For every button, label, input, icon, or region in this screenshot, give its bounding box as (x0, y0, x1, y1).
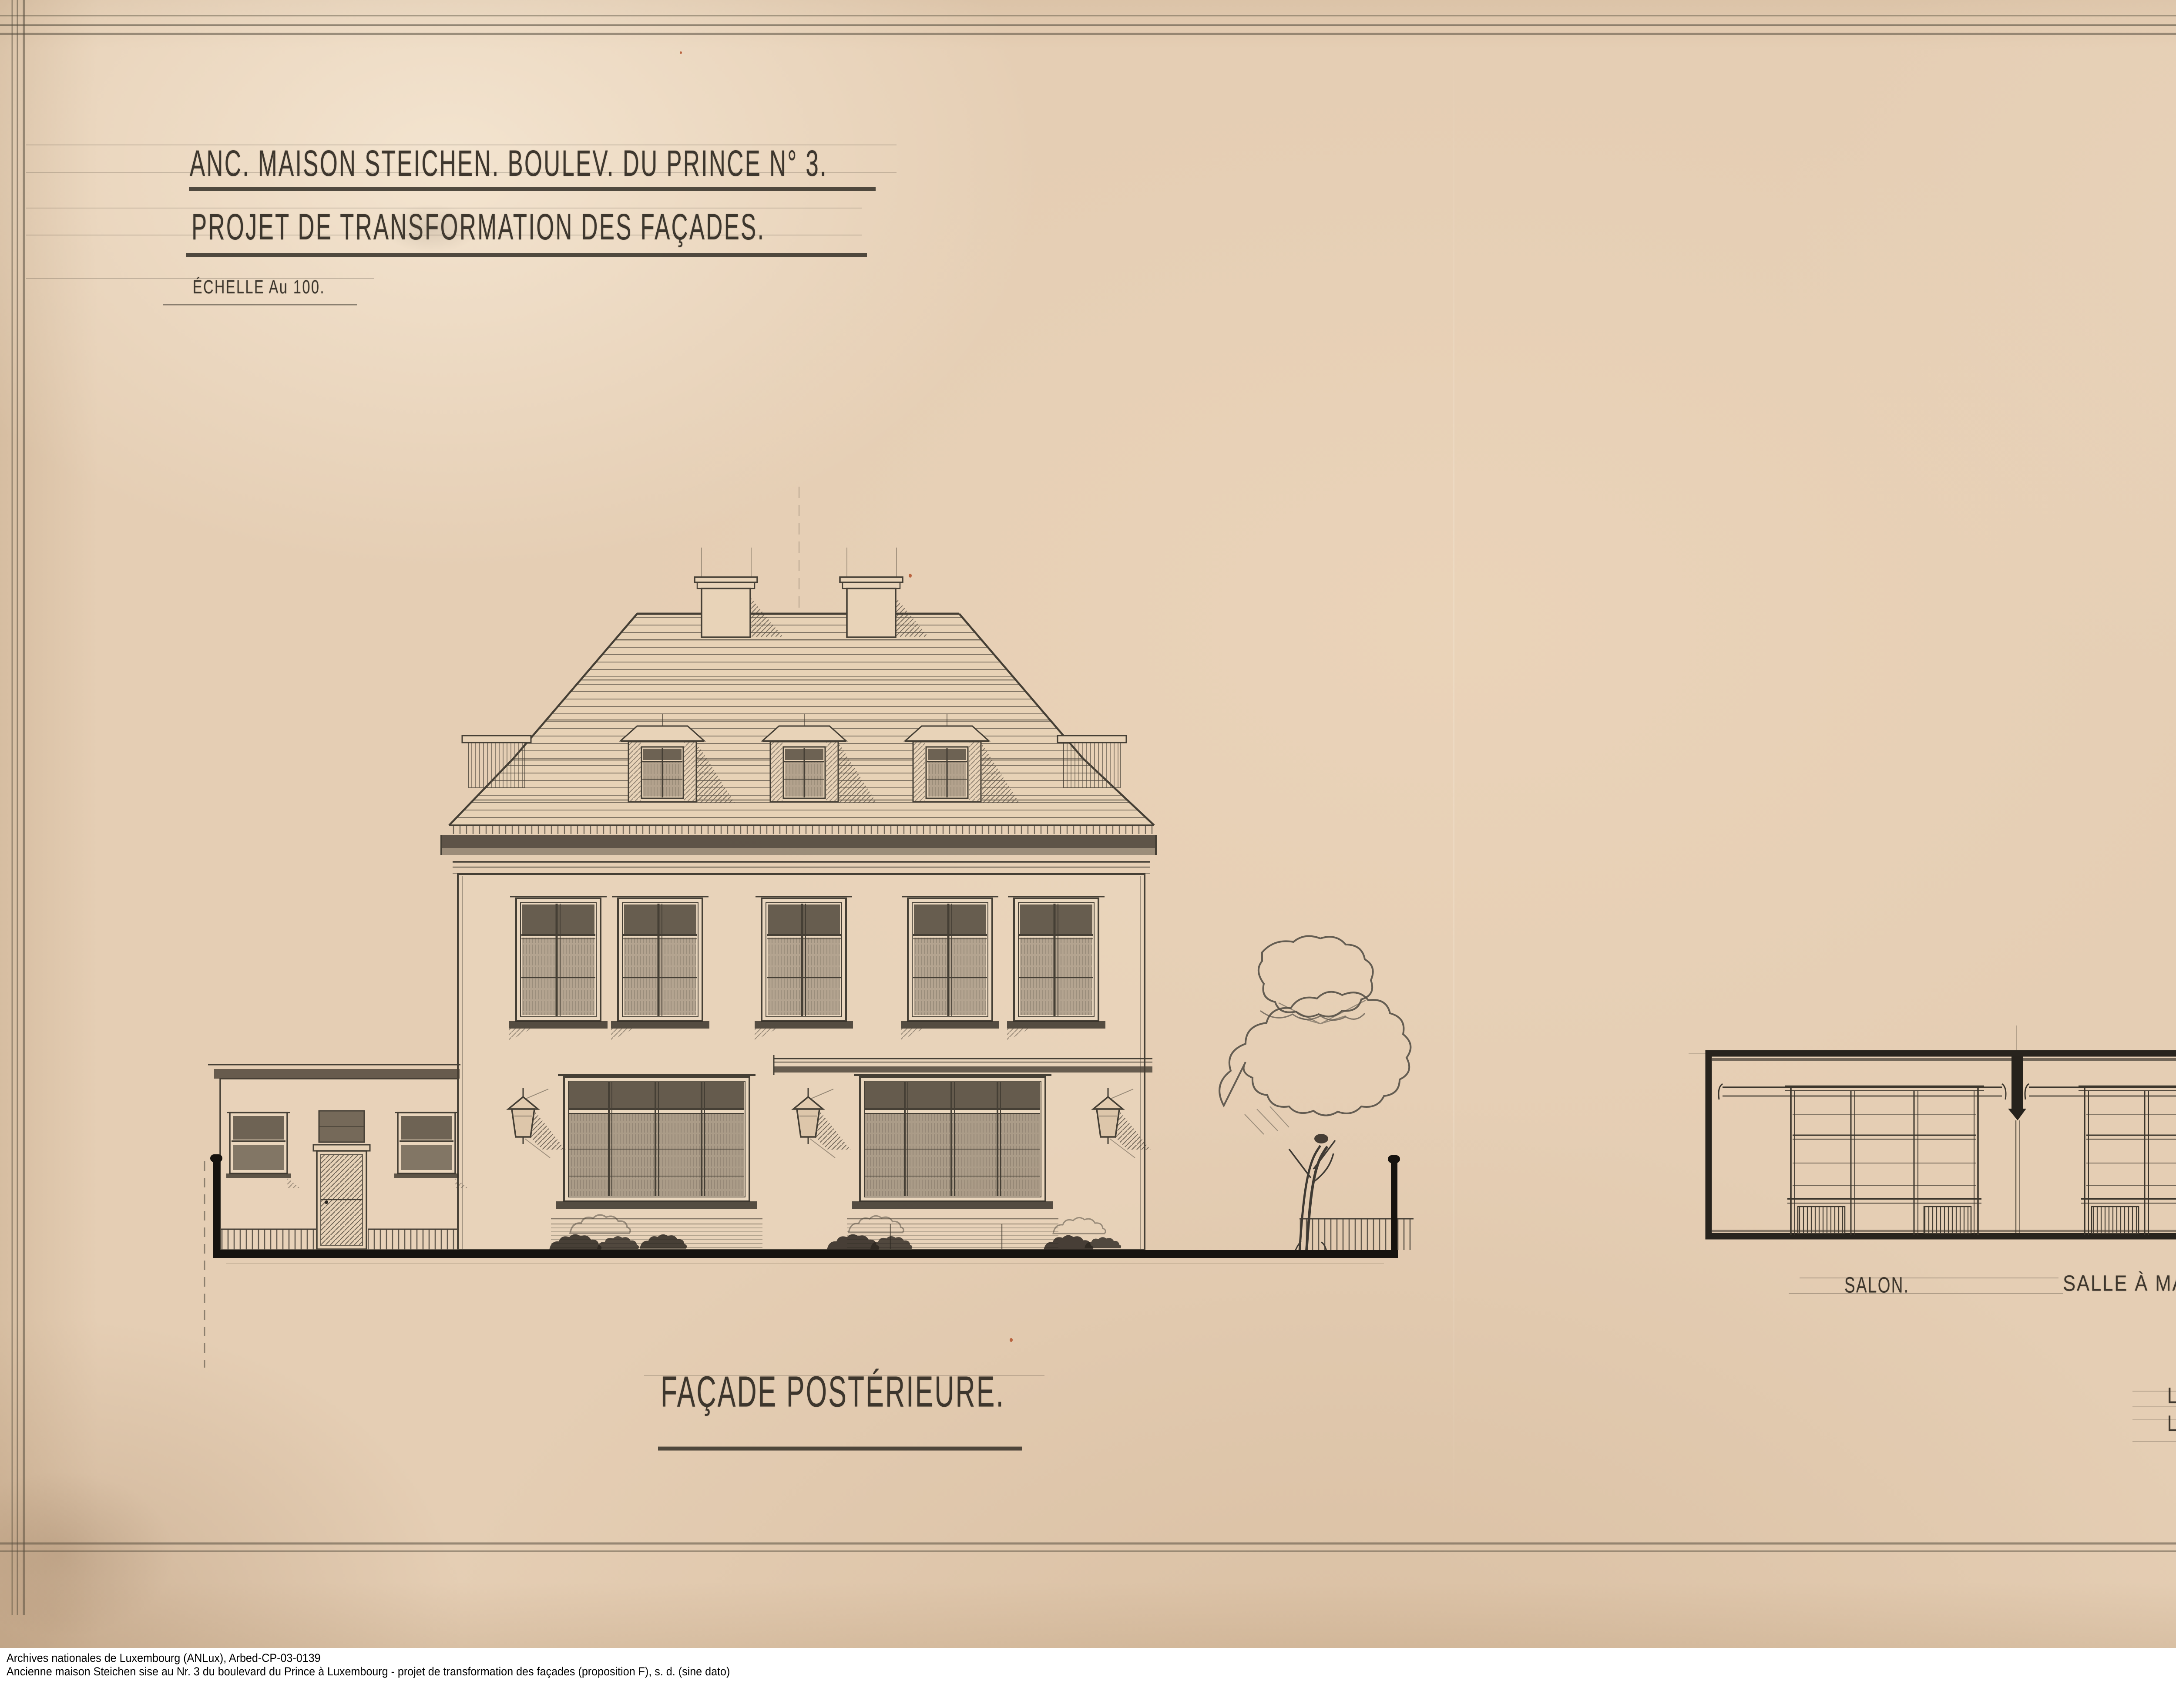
dining-window-wall (2079, 1086, 2176, 1235)
drawing-caption: FAÇADE POSTÉRIEURE. (661, 1367, 1005, 1417)
title-line-1: ANC. MAISON STEICHEN. BOULEV. DU PRINCE … (190, 142, 828, 184)
scanned-archive-page: ANC. MAISON STEICHEN. BOULEV. DU PRINCE … (0, 0, 2176, 1708)
roof-side-block-left (462, 736, 531, 788)
house-elevation (205, 487, 1414, 1368)
annex-door (313, 1111, 370, 1249)
eaves-cornice (441, 825, 1156, 873)
upper-window-4 (901, 897, 999, 1041)
rust-speck (909, 574, 912, 578)
chimney-right (840, 548, 929, 637)
upper-window-2 (611, 897, 709, 1041)
archive-description: Ancienne maison Steichen sise au Nr. 3 d… (7, 1665, 730, 1678)
upper-window-3 (755, 897, 853, 1041)
chimney-left (695, 548, 783, 637)
paper-stain (383, 205, 479, 252)
scale-note: ÉCHELLE Au 100. (193, 277, 325, 298)
garden-tree (1219, 936, 1410, 1251)
annex-wing (208, 1065, 468, 1250)
roof-side-block-right (1058, 736, 1126, 788)
rust-speck (680, 51, 682, 54)
interior-section (1689, 1025, 2176, 1236)
signature-architect: L'ARCHITECTE EN CHEF D'ARBED„ (2167, 1410, 2176, 1436)
room-label-salon: SALON. (1844, 1272, 1909, 1298)
paper-crease (1453, 26, 1454, 1550)
ground-window-left (556, 1075, 757, 1209)
upper-window-1 (509, 897, 608, 1041)
drawing-sheet: ANC. MAISON STEICHEN. BOULEV. DU PRINCE … (0, 0, 2176, 1648)
signature-city-date: LUXEMBOURG. LE (2167, 1382, 2176, 1408)
rust-speck (1010, 1338, 1013, 1342)
salon-window-wall (1785, 1086, 1984, 1235)
ground-window-right (852, 1075, 1053, 1209)
room-label-dining: SALLE À MANGER. (2063, 1270, 2176, 1296)
upper-window-5 (1007, 897, 1105, 1041)
caption-bar: Archives nationales de Luxembourg (ANLux… (0, 1648, 2176, 1708)
archive-reference: Archives nationales de Luxembourg (ANLux… (7, 1651, 321, 1664)
section-center-post (2008, 1056, 2026, 1233)
